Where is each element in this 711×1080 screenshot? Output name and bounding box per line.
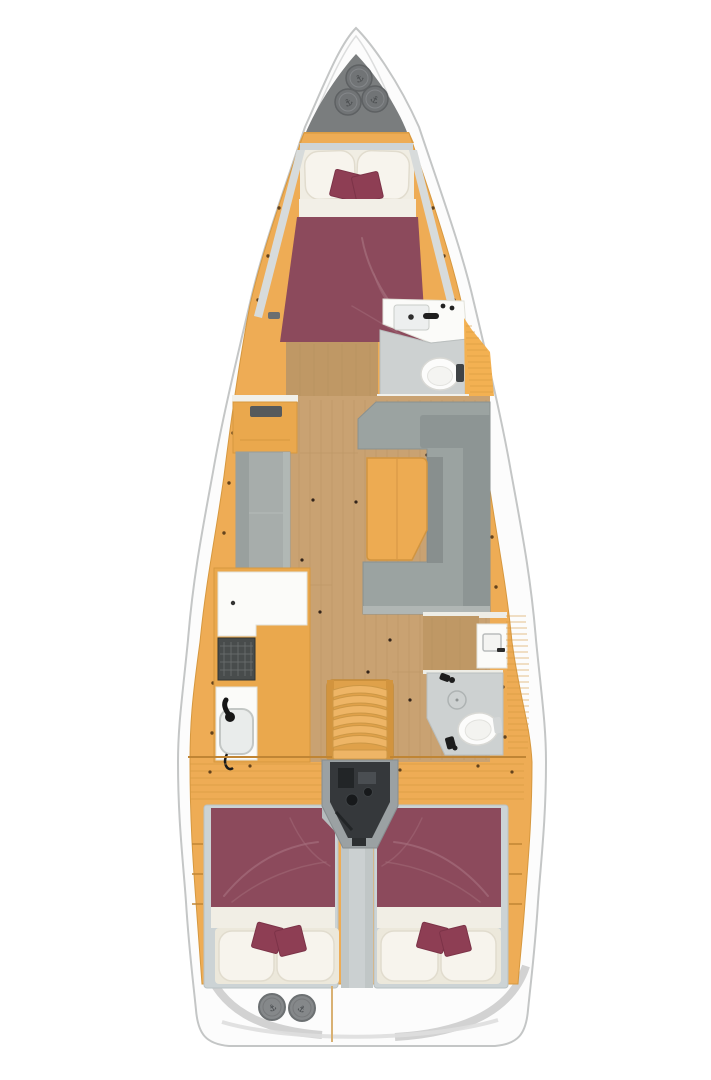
tap-fitting-icon	[441, 304, 446, 309]
aft-cabin-port	[192, 805, 341, 988]
table-shadow	[427, 457, 443, 563]
counter-fitting-icon	[231, 601, 235, 605]
faucet-icon	[423, 313, 439, 319]
salon-bulkhead-port	[232, 395, 298, 402]
handle-icon	[497, 648, 505, 652]
aft-cabin-starboard	[373, 805, 522, 988]
bow-hatch-icon: ⚓	[346, 65, 372, 91]
bed-blanket	[211, 808, 335, 907]
stove-icon	[218, 638, 255, 680]
bed-sheet-band	[211, 907, 335, 928]
door-latch	[268, 312, 280, 319]
companionway-stairs	[327, 680, 393, 762]
head-entry-floor	[423, 616, 479, 673]
sofa-backrest	[463, 415, 490, 611]
galley-sink	[220, 709, 253, 754]
yacht-floorplan: ⚓ ⚓ ⚓	[0, 0, 711, 1080]
floorplan-svg: ⚓ ⚓ ⚓	[0, 0, 711, 1080]
sink-cabinet	[477, 624, 507, 668]
port-settee	[236, 452, 290, 574]
bed-sheet-band	[299, 199, 416, 217]
bow-hatch-icon: ⚓	[362, 86, 388, 112]
bed-blanket	[377, 808, 501, 907]
stern-hatch-icon: ⚓	[289, 995, 315, 1021]
tap-fitting-icon	[450, 306, 455, 311]
sink-drain-icon	[408, 314, 414, 320]
accent-cushion	[351, 171, 383, 203]
bow-hatch-icon: ⚓	[335, 89, 361, 115]
port-cabinet	[233, 402, 297, 453]
galley	[214, 568, 310, 769]
stern-hatch-icon: ⚓	[259, 994, 285, 1020]
salon-table	[367, 458, 427, 560]
bed-sheet-band	[377, 907, 501, 928]
instrument-panel-icon	[250, 406, 282, 417]
